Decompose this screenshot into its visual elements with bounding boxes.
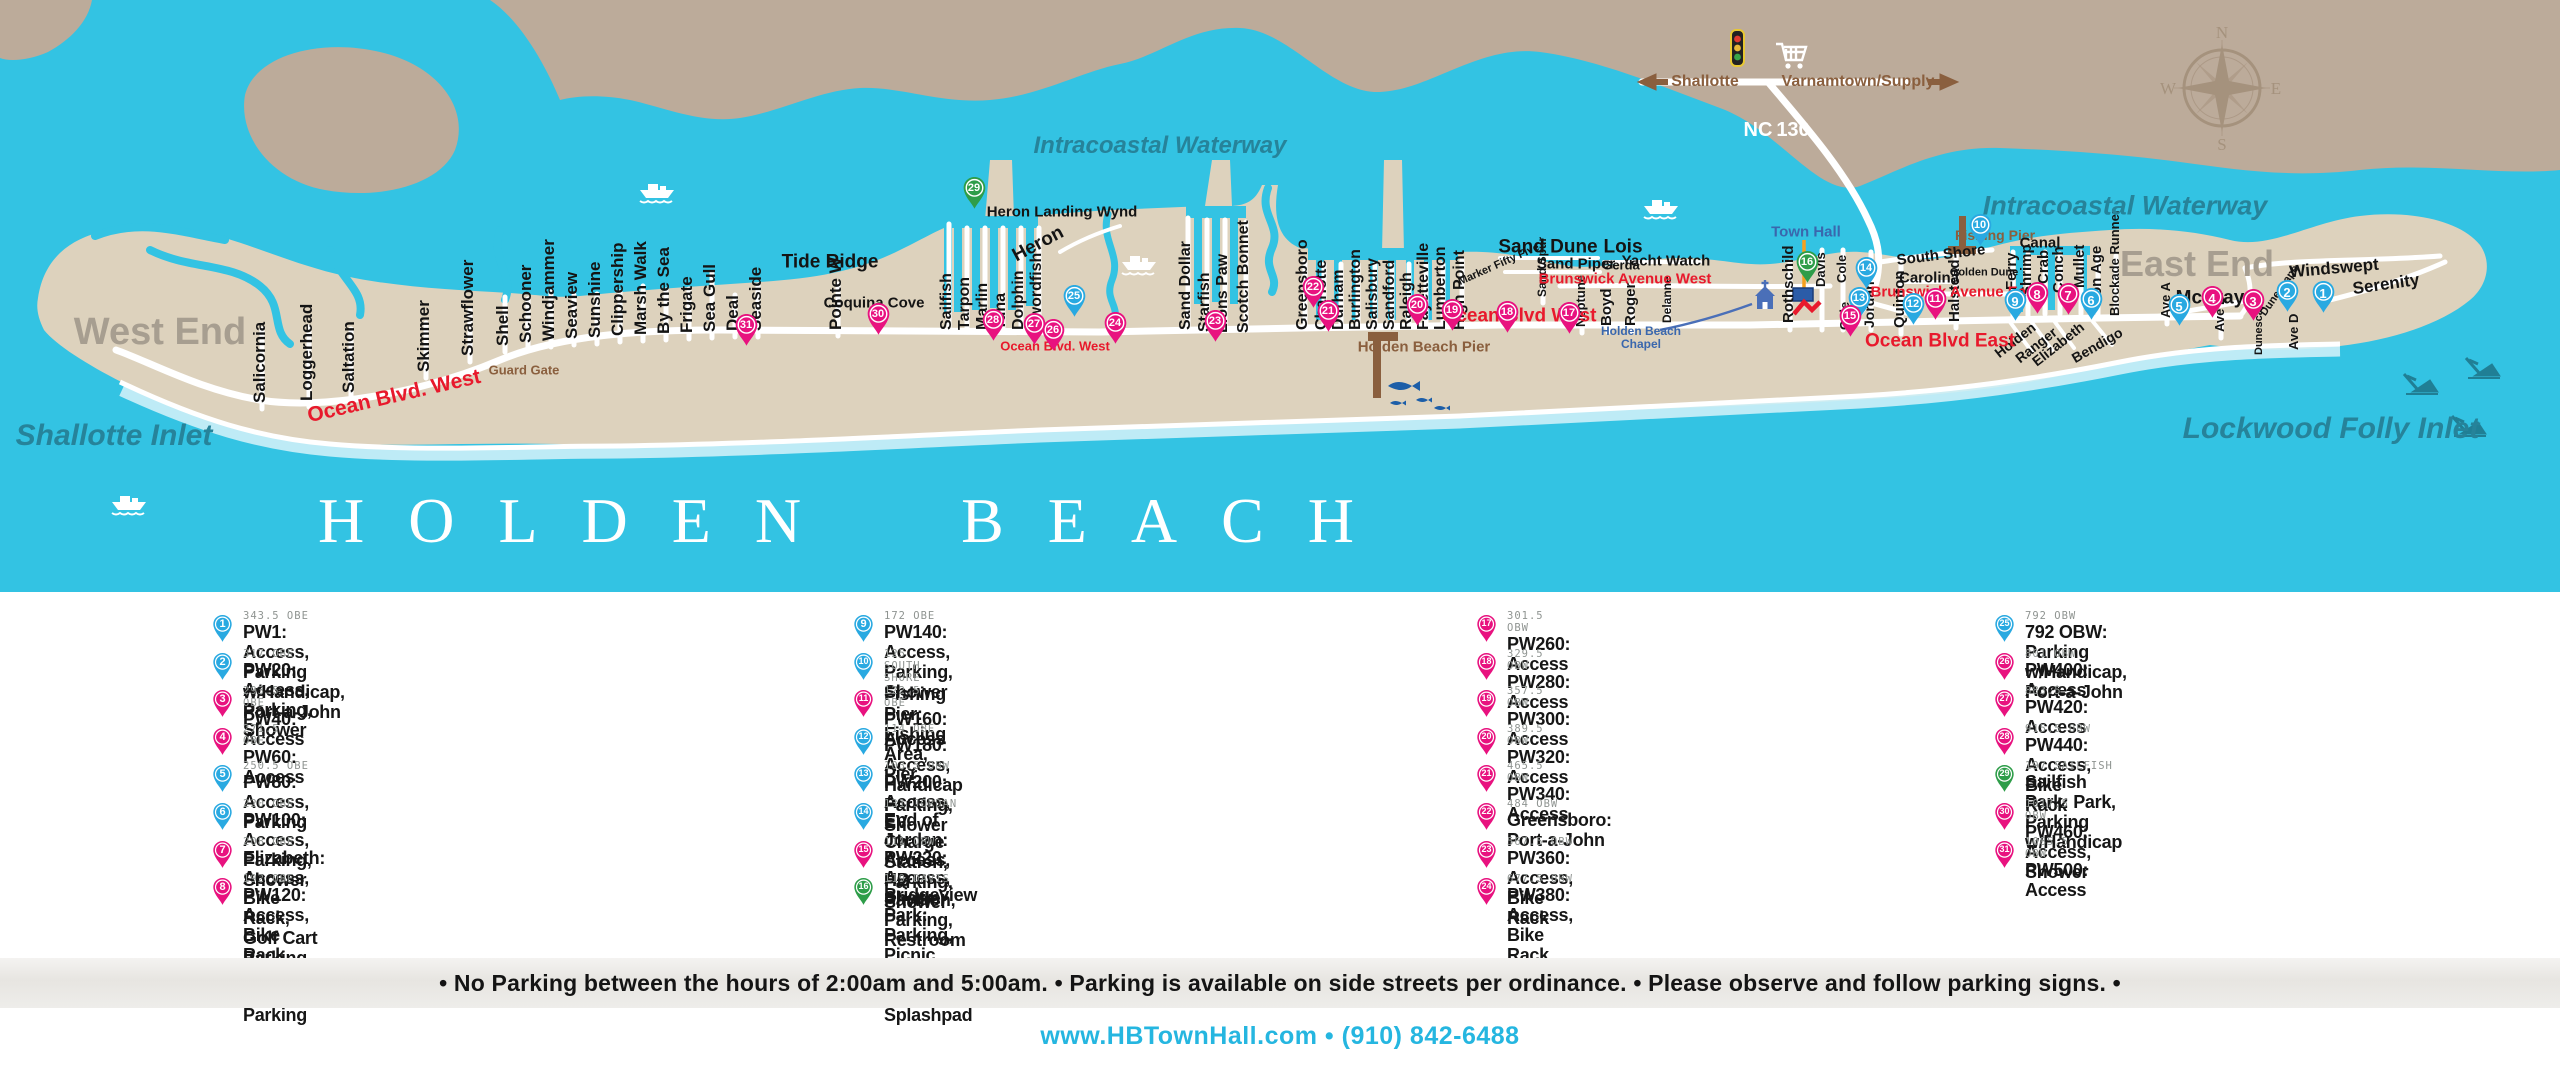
map-pin-29: 29	[961, 176, 988, 210]
legend-address: 197 SAILFISH	[2025, 760, 2122, 772]
map-pin-15: 15	[1837, 304, 1864, 338]
legend-pin-icon: 25	[1994, 614, 2015, 648]
legend-pin-icon: 10	[853, 652, 874, 686]
street-label: Scotch Bonnet	[1236, 220, 1252, 333]
map-label: Guard Gate	[489, 364, 560, 377]
street-label: Marsh Walk	[632, 241, 649, 335]
legend-address: 103.5 OBW	[884, 760, 953, 772]
legend-pin-icon: 12	[853, 727, 874, 761]
legend-pin-icon: 24	[1476, 877, 1497, 911]
map-pin-number: 6	[2078, 293, 2105, 308]
legend-pin-icon: 17	[1476, 614, 1497, 648]
legend-address: 357.5 OBW	[1507, 685, 1570, 709]
legend-pin-icon: 1	[212, 614, 233, 648]
street-label: Sea Gull	[701, 264, 718, 332]
map-label: Golden Dune	[1950, 268, 2018, 279]
legend-description: PW500: Access	[2025, 860, 2088, 900]
map-title-word-1: HOLDEN	[318, 484, 845, 558]
map-pin-30: 30	[865, 302, 892, 336]
map-pin-number: 23	[1202, 315, 1229, 327]
traffic-light-icon	[1731, 30, 1744, 66]
svg-text:E: E	[2271, 79, 2281, 98]
legend-pin-icon: 15	[853, 840, 874, 874]
map-pin-number: 20	[1404, 299, 1431, 311]
street-label: Salisbury	[1365, 258, 1381, 330]
street-label: Seaview	[563, 272, 580, 339]
map-pin-number: 1	[2310, 286, 2337, 301]
map-pin-27: 27	[1021, 312, 1048, 346]
map-label: Chapel	[1621, 338, 1661, 350]
legend-address: 111 OBW	[884, 836, 950, 848]
map-label: Intracoastal Waterway	[1983, 193, 2268, 220]
map-label: Canal	[2020, 236, 2061, 251]
map-pin-24: 24	[1102, 311, 1129, 345]
legend-pin-icon: 8	[212, 877, 233, 911]
map-pin-number: 4	[2199, 291, 2226, 306]
map-label: East End	[2120, 246, 2274, 282]
legend-address: 119 DAVIS	[884, 873, 985, 885]
map-pin-number: 2	[2274, 285, 2301, 300]
legend-address: 220 OBE	[243, 798, 312, 810]
map-pin-number: 29	[961, 182, 988, 194]
map-label: Town Hall	[1771, 225, 1841, 240]
map-pin-number: 22	[1300, 281, 1327, 293]
legend-address: 567.5 OBW	[1507, 836, 1573, 848]
map-pin-number: 15	[1837, 310, 1864, 322]
street-label: Crab	[2036, 250, 2051, 284]
svg-text:S: S	[2217, 135, 2226, 154]
legend-address: 1085.5 OBW	[2025, 836, 2088, 860]
legend-address: 329.5 OBW	[1507, 648, 1570, 672]
legend-pin-icon: 7	[212, 840, 233, 874]
map-title-word-2: BEACH	[961, 484, 1398, 558]
map-pin-18: 18	[1494, 300, 1521, 334]
map-pin-number: 9	[2002, 294, 2029, 309]
map-pin-number: 12	[1900, 298, 1927, 310]
legend-address: 317 OBE	[243, 648, 312, 660]
map-pin-25: 25	[1061, 284, 1088, 318]
map-pin-number: 14	[1853, 262, 1880, 274]
street-label: Tarpon	[957, 277, 973, 330]
street-label: Clippership	[609, 242, 626, 336]
legend-address: 343.5 OBE	[243, 610, 345, 622]
map-pin-number: 25	[1061, 290, 1088, 302]
street-label: Salicornia	[251, 322, 268, 403]
legend-pin-icon: 20	[1476, 727, 1497, 761]
legend-address: 125 SOUTH SHORE	[884, 648, 946, 684]
legend-address: 114 OBE	[884, 723, 963, 735]
map-title: HOLDEN BEACH	[318, 484, 1398, 558]
map-pin-number: 30	[865, 308, 892, 320]
legend-pin-icon: 28	[1994, 727, 2015, 761]
legend-address: 293.5 OBE	[243, 685, 304, 709]
svg-text:W: W	[2160, 79, 2177, 98]
street-label: Boyd	[1599, 289, 1614, 327]
street-label: Frigate	[678, 276, 695, 333]
legend-address: 208 OBE	[243, 836, 325, 848]
street-label: Schooner	[517, 265, 534, 343]
map-pin-31: 31	[733, 313, 760, 347]
map-label: Shallotte Inlet	[16, 421, 213, 451]
svg-text:N: N	[2216, 23, 2228, 42]
legend-panel: 1 343.5 OBE PW1: Access, Parking w/Handi…	[0, 592, 2560, 958]
map-pin-2: 2	[2274, 279, 2301, 313]
legend-pin-icon: 3	[212, 689, 233, 723]
street-label: Strawflower	[459, 260, 476, 356]
street-label: Burlington	[1348, 249, 1364, 330]
street-label: Roger	[1623, 283, 1638, 326]
street-label: Cole	[1835, 255, 1848, 283]
map-pin-number: 28	[980, 314, 1007, 326]
map-label: 130	[1776, 120, 1809, 140]
legend-pin-icon: 14	[853, 802, 874, 836]
street-label: Shell	[494, 305, 511, 346]
footer-contact: www.HBTownHall.com • (910) 842-6488	[0, 1022, 2560, 1051]
map-pin-3: 3	[2240, 288, 2267, 322]
map-label: Heron Landing Wynd	[987, 205, 1138, 220]
legend-pin-icon: 2	[212, 652, 233, 686]
legend-pin-icon: 31	[1994, 840, 2015, 874]
map-pin-number: 13	[1846, 292, 1873, 304]
legend-pin-icon: 9	[853, 614, 874, 648]
legend-address: 677.5 OBW	[1507, 873, 1573, 885]
map-label: Yacht Watch	[1622, 254, 1711, 269]
map-pin-6: 6	[2078, 287, 2105, 321]
street-label: Loggerhead	[298, 304, 315, 401]
map-pin-number: 16	[1794, 256, 1821, 268]
holden-beach-parking-map: N E S W HOLDEN BEACH SalicorniaLoggerhea…	[0, 0, 2560, 1072]
legend-pin-icon: 30	[1994, 802, 2015, 836]
legend-address: 883.5	[2025, 685, 2088, 697]
map-pin-number: 10	[1967, 219, 1994, 231]
map-label: Holden Beach	[1601, 325, 1681, 337]
map-pin-number: 18	[1494, 306, 1521, 318]
legend-pin-icon: 27	[1994, 689, 2015, 723]
legend-pin-icon: 16	[853, 877, 874, 911]
map-pin-number: 7	[2055, 288, 2082, 303]
legend-address: 122.5 OBE	[884, 685, 947, 709]
legend-pin-icon: 11	[853, 689, 874, 723]
map-pin-4: 4	[2199, 285, 2226, 319]
legend-address: 1017.5 OBW	[2025, 798, 2091, 822]
map-pin-28: 28	[980, 308, 1007, 342]
parking-notice-text: • No Parking between the hours of 2:00am…	[0, 958, 2560, 1008]
map-pin-1: 1	[2310, 280, 2337, 314]
map-label: Brunswick Avenue West	[1539, 272, 1712, 287]
legend-pin-icon: 6	[212, 802, 233, 836]
map-pin-7: 7	[2055, 282, 2082, 316]
street-label: Sandford	[1382, 260, 1398, 330]
map-pin-22: 22	[1300, 275, 1327, 309]
street-label: Ave D	[2287, 314, 2300, 350]
map-label: Ocean Blvd East	[1865, 332, 2015, 351]
street-label: Skimmer	[415, 300, 432, 372]
legend-pin-icon: 29	[1994, 764, 2015, 798]
map-pin-19: 19	[1439, 298, 1466, 332]
map-pin-10: 10	[1967, 213, 1994, 247]
street-label: By the Sea	[655, 247, 672, 334]
map-pin-number: 17	[1556, 307, 1583, 319]
map-label: Holden Beach Pier	[1358, 340, 1491, 355]
legend-address: 250.5 OBE	[243, 760, 309, 772]
legend-address: 131 JORDAN	[884, 798, 966, 810]
legend-pin-icon: 4	[212, 727, 233, 761]
map-pin-number: 27	[1021, 318, 1048, 330]
map-label: Intracoastal Waterway	[1034, 134, 1287, 158]
map-pin-number: 24	[1102, 317, 1129, 329]
legend-pin-icon: 21	[1476, 764, 1497, 798]
map-label: NC	[1744, 120, 1773, 140]
legend-pin-icon: 26	[1994, 652, 2015, 686]
map-pin-14: 14	[1853, 256, 1880, 290]
map-pin-number: 31	[733, 319, 760, 331]
map-label: West End	[74, 313, 246, 351]
map-label: Tide Ridge	[782, 253, 879, 272]
map-canvas: N E S W HOLDEN BEACH SalicorniaLoggerhea…	[0, 0, 2560, 592]
map-pin-17: 17	[1556, 301, 1583, 335]
legend-address: 792 OBW	[2025, 610, 2127, 622]
legend-pin-icon: 22	[1476, 802, 1497, 836]
legend-address: 801 OBW	[2025, 648, 2088, 660]
street-label: Saltation	[340, 321, 357, 393]
legend-address: 192 OBE	[243, 873, 309, 885]
street-label: Sand Dollar	[1178, 241, 1194, 330]
parking-notice-bar: • No Parking between the hours of 2:00am…	[0, 958, 2560, 1008]
legend-address: 484 OBW	[1507, 798, 1612, 810]
legend-address: 465.5 OBW	[1507, 760, 1570, 784]
map-pin-12: 12	[1900, 292, 1927, 326]
map-pin-5: 5	[2166, 293, 2193, 327]
legend-description: PW380: Access, Bike Rack	[1507, 885, 1573, 965]
legend-address: 301.5 OBW	[1507, 610, 1570, 634]
map-pin-20: 20	[1404, 293, 1431, 327]
map-pin-16: 16	[1794, 250, 1821, 284]
legend-address: 915.5 OBW	[2025, 723, 2091, 735]
legend-pin-icon: 13	[853, 764, 874, 798]
map-label: Varnamtown/Supply	[1782, 74, 1935, 90]
street-label: Windjammer	[540, 239, 557, 341]
map-pin-23: 23	[1202, 309, 1229, 343]
map-pin-9: 9	[2002, 288, 2029, 322]
map-pin-number: 3	[2240, 294, 2267, 309]
map-label: Shallotte	[1671, 74, 1739, 90]
street-label: Sunshine	[586, 261, 603, 338]
map-label: Lockwood Folly Inlet	[2183, 414, 2480, 444]
map-pin-number: 5	[2166, 299, 2193, 314]
legend-pin-icon: 19	[1476, 689, 1497, 723]
legend-pin-icon: 23	[1476, 840, 1497, 874]
legend-address: 389.5 OBW	[1507, 723, 1570, 747]
street-label: Sailfish	[939, 273, 955, 330]
legend-pin-icon: 18	[1476, 652, 1497, 686]
legend-address: 271.5 OBE	[243, 723, 304, 747]
map-pin-number: 19	[1439, 304, 1466, 316]
legend-address: 172 OBE	[884, 610, 953, 622]
legend-pin-icon: 5	[212, 764, 233, 798]
